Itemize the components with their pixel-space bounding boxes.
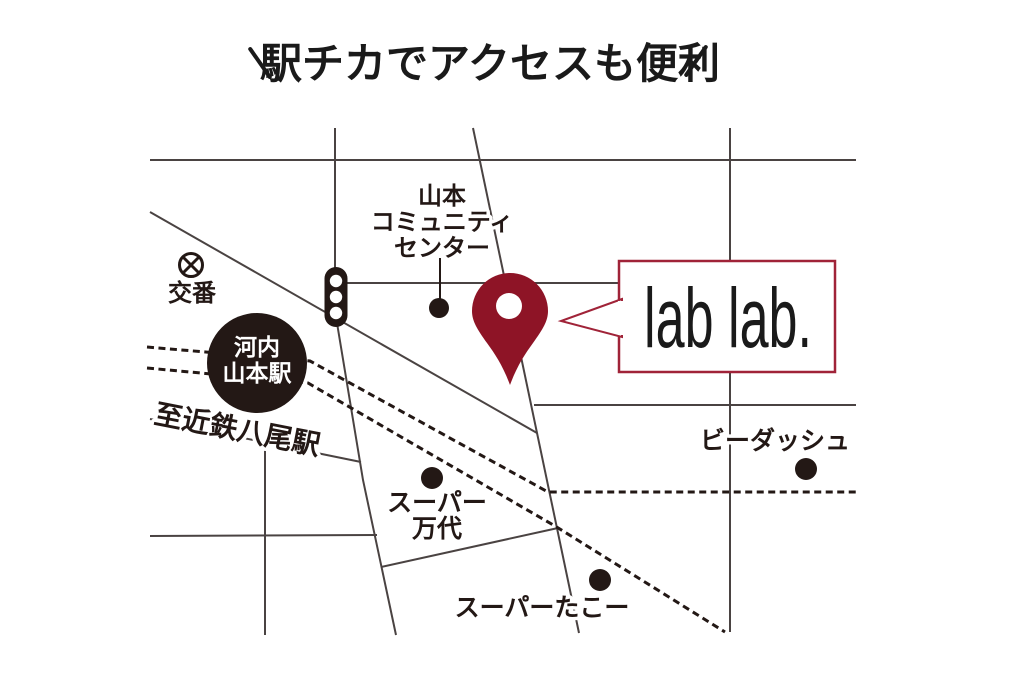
- callout-label: lab lab.: [644, 271, 812, 365]
- poi-dot-super-mandai: [421, 467, 443, 489]
- label-mandai-line2: 万代: [412, 515, 462, 543]
- station-marker: 河内 山本駅: [207, 313, 307, 413]
- label-community-line1: 山本: [418, 183, 466, 210]
- road-line-lower-left-horizontal: [150, 535, 377, 536]
- road-line-diagonal-b: [473, 128, 579, 633]
- poi-dot-community-center: [429, 298, 449, 318]
- page-title-text: 駅チカでアクセスも便利: [0, 30, 1002, 91]
- station-label-line2: 山本駅: [223, 360, 292, 386]
- road-line-steep-c: [337, 323, 396, 635]
- callout-pointer: [561, 299, 622, 337]
- police-box-icon: [180, 254, 203, 277]
- access-map: 河内 山本駅 交番 山本 コミュニティ センター 至近鉄八尾駅 ビーダッシュ ス…: [0, 0, 1024, 683]
- label-b-dash: ビーダッシュ: [700, 426, 850, 455]
- road-line-lower-diagonal: [381, 528, 558, 567]
- station-label-line1: 河内: [234, 334, 280, 360]
- label-community-line2: コミュニティ: [371, 209, 514, 236]
- poi-dot-super-tako: [589, 569, 611, 591]
- map-pin-icon: [472, 273, 548, 385]
- label-community-line3: センター: [394, 235, 490, 262]
- label-koban: 交番: [168, 279, 217, 307]
- page-title: 駅チカでアクセスも便利: [0, 0, 1024, 100]
- traffic-light-icon: [325, 267, 348, 327]
- poi-dot-b-dash: [795, 458, 817, 480]
- label-mandai-line1: スーパー: [387, 489, 487, 517]
- access-map-page: 駅チカでアクセスも便利: [0, 0, 1024, 683]
- callout-bubble: lab lab.: [561, 261, 835, 372]
- label-super-tako: スーパーたこー: [455, 594, 630, 622]
